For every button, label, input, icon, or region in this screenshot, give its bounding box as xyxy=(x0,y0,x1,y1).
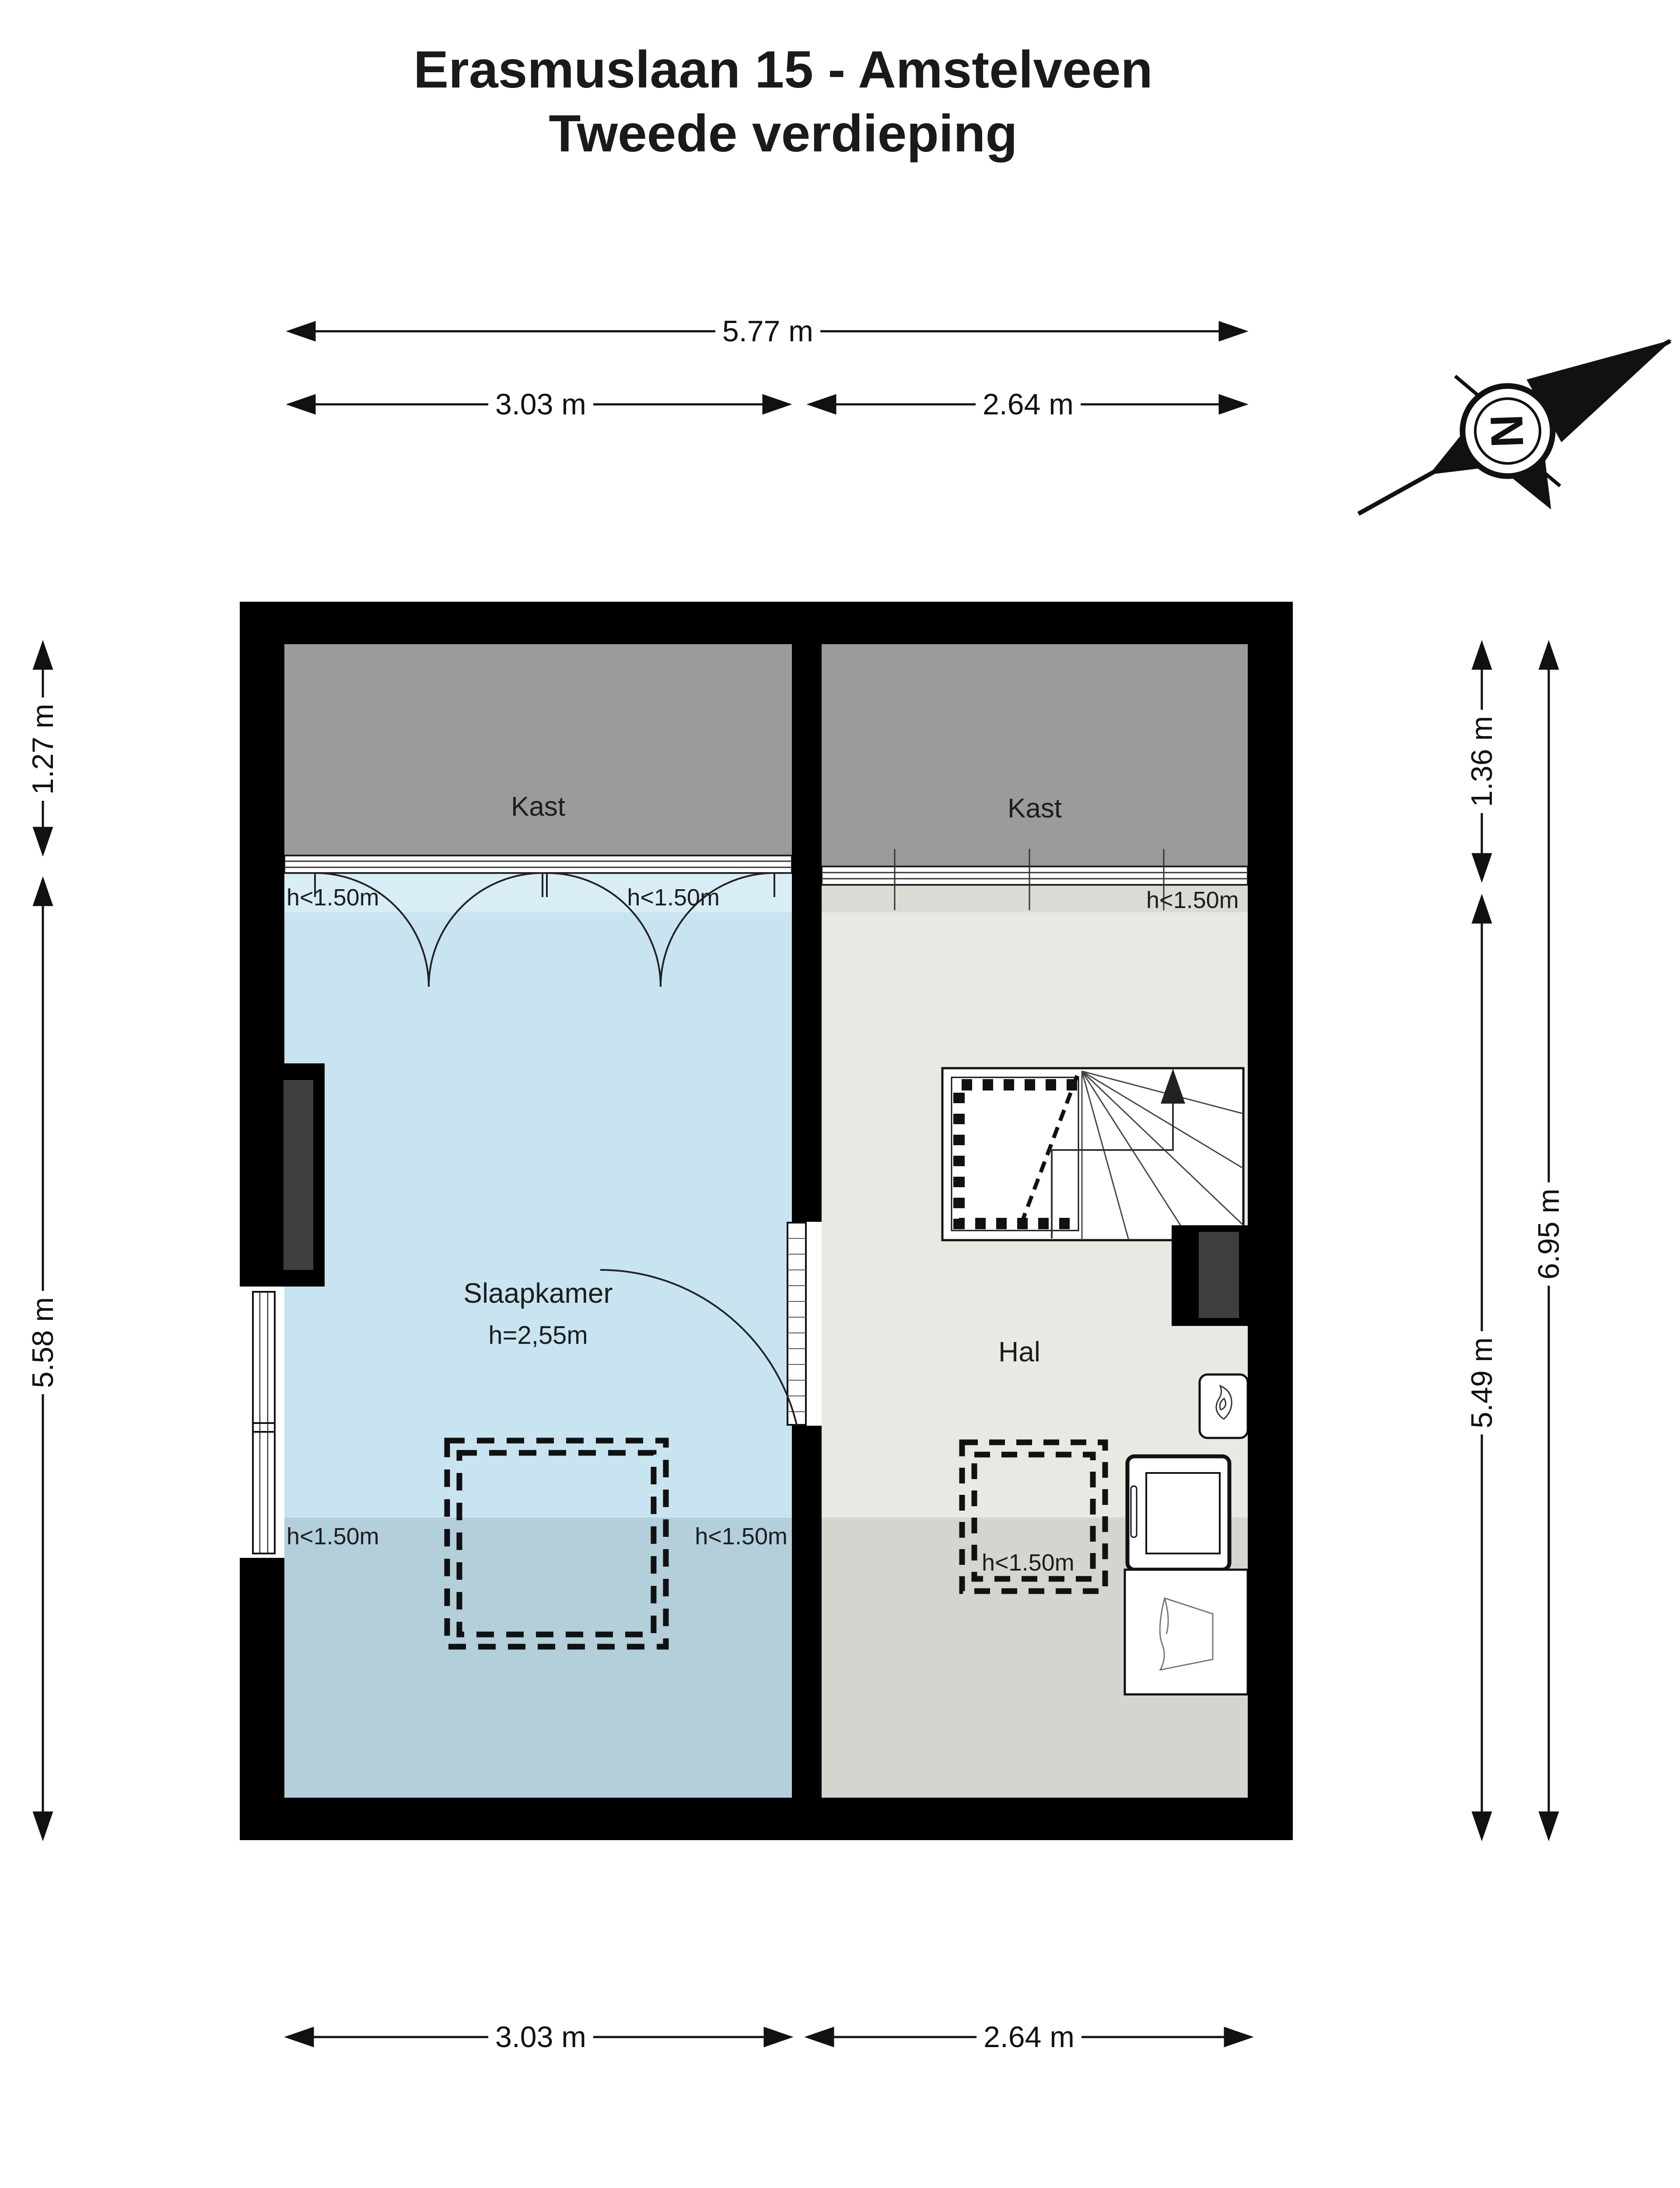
room-label-kast-right: Kast xyxy=(822,793,1248,824)
low-ceiling-hal: h<1.50m xyxy=(982,1549,1074,1576)
low-ceiling-bottom-mid: h<1.50m xyxy=(678,1523,787,1550)
low-ceiling-bottom-left: h<1.50m xyxy=(287,1523,379,1550)
page-title-line1: Erasmuslaan 15 - Amstelveen xyxy=(0,38,1566,102)
slaapkamer-floor xyxy=(284,912,792,1518)
low-ceiling-top-mid: h<1.50m xyxy=(610,884,720,911)
slaapkamer-low-zone xyxy=(284,1518,792,1798)
washing-machine xyxy=(1127,1456,1229,1570)
dim-right-upper: 1.36 m xyxy=(1464,710,1500,813)
staircase xyxy=(942,1068,1243,1240)
wall-left-lower xyxy=(240,1558,284,1840)
north-arrow-compass: N xyxy=(1323,276,1680,593)
wall-left-upper xyxy=(240,602,284,1068)
room-label-slaapkamer: Slaapkamer xyxy=(284,1277,792,1309)
low-ceiling-top-right: h<1.50m xyxy=(1146,887,1248,914)
wall-bottom xyxy=(240,1798,1293,1840)
stair-duct-fill xyxy=(1199,1232,1239,1318)
dim-right-total: 6.95 m xyxy=(1531,1182,1567,1286)
compass-letter: N xyxy=(1480,414,1533,449)
floorplan-drawing: N xyxy=(0,0,1680,2188)
laundry-basket xyxy=(1125,1570,1248,1694)
dim-bottom-right: 2.64 m xyxy=(976,2019,1081,2055)
dim-top-total: 5.77 m xyxy=(715,313,820,349)
room-label-hal: Hal xyxy=(801,1336,1238,1368)
dim-right-lower: 5.49 m xyxy=(1464,1331,1500,1434)
room-ceiling-height: h=2,55m xyxy=(284,1321,792,1350)
kast-left-floor xyxy=(284,644,792,856)
low-ceiling-top-left: h<1.50m xyxy=(287,884,379,911)
boiler xyxy=(1200,1375,1248,1438)
kast-right-floor xyxy=(822,644,1248,866)
dim-top-left: 3.03 m xyxy=(488,386,593,422)
dim-left-upper: 1.27 m xyxy=(25,698,61,801)
page-title-line2: Tweede verdieping xyxy=(0,102,1566,165)
dim-left-lower: 5.58 m xyxy=(25,1291,61,1394)
window-left xyxy=(240,1287,284,1558)
wall-right xyxy=(1248,602,1293,1840)
wall-divider-lower xyxy=(792,1426,822,1798)
page-title: Erasmuslaan 15 - Amstelveen Tweede verdi… xyxy=(0,38,1566,166)
dim-top-right: 2.64 m xyxy=(976,386,1081,422)
chimney-duct-fill xyxy=(283,1080,313,1270)
wall-divider-upper xyxy=(792,644,822,1222)
room-label-kast-left: Kast xyxy=(284,791,792,822)
dim-bottom-left: 3.03 m xyxy=(488,2019,593,2055)
floorplan-page: N Erasmuslaan 15 - Amstelveen Tweede ver… xyxy=(0,0,1680,2188)
wall-top xyxy=(240,602,1293,644)
